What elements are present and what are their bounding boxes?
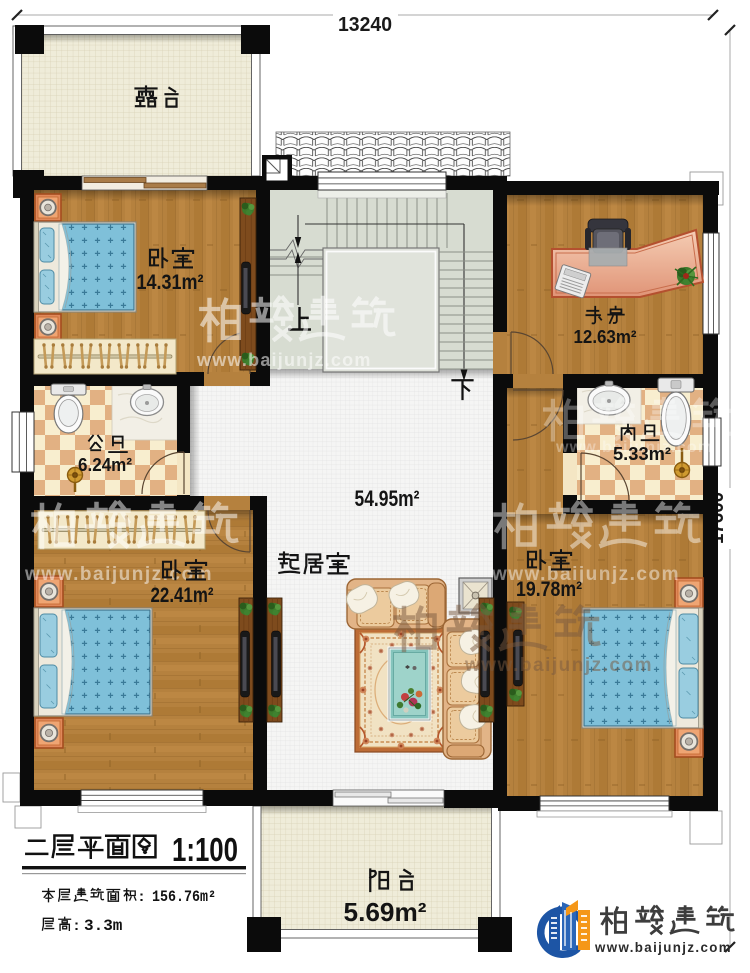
- svg-text:www.baijunjz.com: www.baijunjz.com: [464, 655, 653, 676]
- svg-text:www.baijunjz.com: www.baijunjz.com: [196, 350, 372, 370]
- svg-text:1:100: 1:100: [172, 831, 238, 868]
- svg-text:156.76m²: 156.76m²: [152, 888, 216, 906]
- svg-text:5.69m²: 5.69m²: [344, 897, 427, 927]
- svg-text:12.63m²: 12.63m²: [574, 327, 637, 347]
- svg-text:www.baijunjz.com: www.baijunjz.com: [594, 940, 732, 955]
- svg-text:www.baijunjz.com: www.baijunjz.com: [24, 564, 213, 585]
- svg-text::: :: [74, 917, 79, 934]
- svg-text:14.31m²: 14.31m²: [137, 271, 204, 294]
- svg-text:19.78m²: 19.78m²: [516, 578, 582, 601]
- svg-text:13240: 13240: [338, 14, 392, 36]
- svg-text::: :: [139, 888, 144, 905]
- svg-text:54.95m²: 54.95m²: [355, 486, 420, 511]
- svg-text:3.3m: 3.3m: [84, 917, 123, 935]
- svg-text:5.33m²: 5.33m²: [613, 444, 671, 464]
- svg-text:22.41m²: 22.41m²: [151, 584, 214, 607]
- svg-text:6.24m²: 6.24m²: [78, 454, 132, 475]
